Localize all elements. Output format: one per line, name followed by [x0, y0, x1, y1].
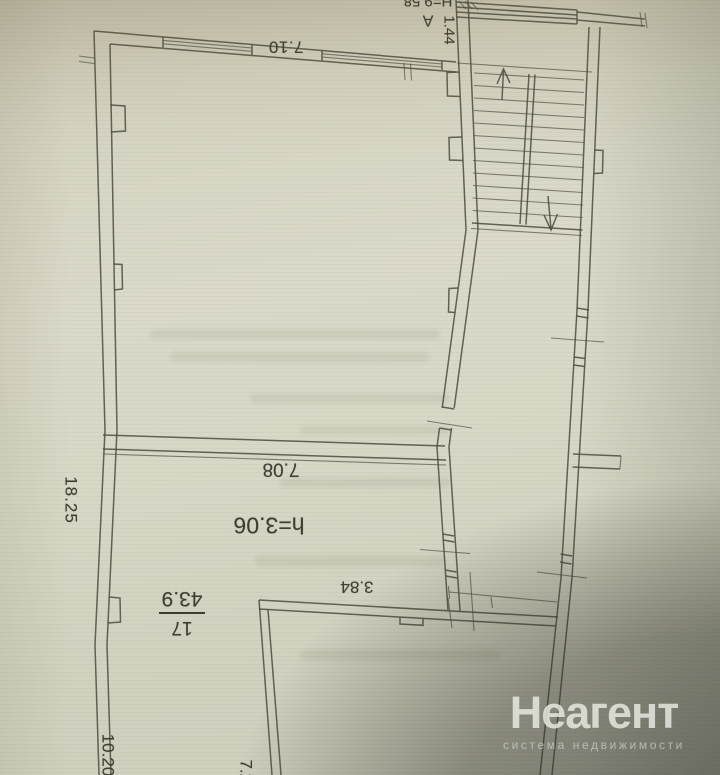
floor-plan-drawing	[0, 0, 720, 775]
hall-walls	[79, 31, 456, 775]
dimension-3-84: 3.84	[340, 577, 373, 596]
floor-plan-photo: 7.10 А Н=9.58 1.44 7.08 h=3.06 3.84 17 4…	[0, 0, 720, 775]
dimension-10-20: 10.20	[98, 734, 117, 775]
watermark-subtitle: система недвижимости	[468, 738, 720, 752]
dimension-7-20: 7.20	[236, 759, 255, 775]
right-exterior-wall	[540, 27, 621, 775]
ceiling-height: h=3.06	[234, 512, 305, 537]
stairwell	[456, 1, 647, 236]
dimension-room-width: 7.08	[263, 458, 300, 479]
dimension-left-length: 18.25	[61, 476, 80, 524]
dimension-top-width: 7.10	[268, 37, 303, 56]
stairs-up-arrow	[497, 69, 510, 100]
stairs-down-arrow	[544, 196, 558, 230]
watermark: Неагент система недвижимости	[468, 688, 720, 752]
room-area: 43.9	[159, 587, 205, 610]
dimension-1-44: 1.44	[440, 15, 457, 44]
dimension-ticks	[420, 338, 604, 631]
building-height: Н=9.58	[404, 0, 453, 9]
room-number-area: 17 43.9	[159, 587, 205, 637]
fraction-line	[159, 612, 205, 614]
watermark-logo: Неагент	[468, 688, 720, 738]
room-number: 17	[159, 616, 205, 637]
longitudinal-wall	[437, 0, 478, 611]
